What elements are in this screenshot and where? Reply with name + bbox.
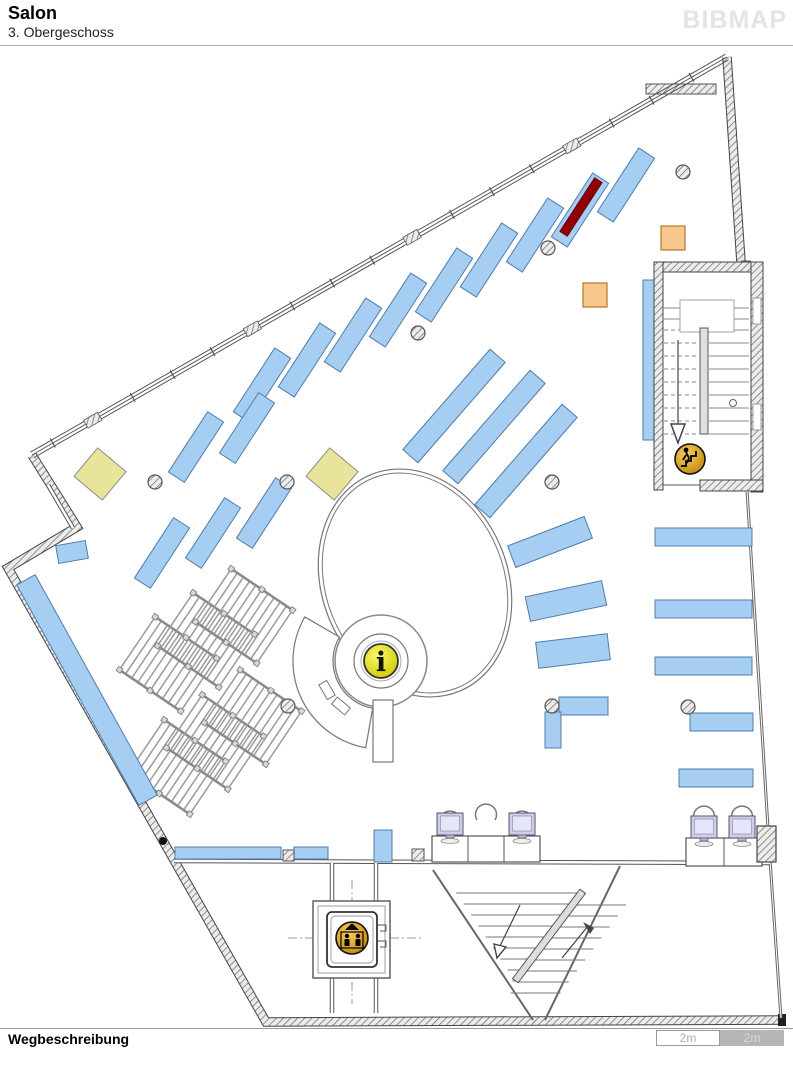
elevator-icon [336, 922, 368, 954]
page-title: Salon [8, 3, 57, 24]
structural-column [280, 475, 294, 489]
bookshelf [643, 280, 655, 440]
door-pivot [159, 837, 167, 845]
display-bin [661, 226, 685, 250]
stairs-icon [675, 444, 705, 474]
bookshelf [536, 634, 611, 669]
bookshelf [559, 697, 608, 715]
structural-column [676, 165, 690, 179]
bookshelf [17, 575, 158, 806]
bookshelf [525, 581, 606, 622]
info-icon: i [361, 641, 401, 681]
elevator [313, 901, 390, 978]
bookshelf [134, 518, 189, 589]
bookshelf [655, 657, 752, 675]
structural-column [148, 475, 162, 489]
computer-stations-bottom [432, 804, 540, 862]
floor-subtitle: 3. Obergeschoss [8, 24, 114, 40]
chair [476, 804, 497, 820]
stair-divider [700, 328, 708, 434]
wall-pier [412, 849, 424, 861]
scale-bar-light: 2m [656, 1030, 720, 1046]
bookshelf [56, 541, 89, 564]
structural-column [545, 699, 559, 713]
wall-column [757, 826, 776, 862]
structural-column [681, 700, 695, 714]
window-wall [30, 54, 728, 458]
display-bin [583, 283, 607, 307]
structural-column [281, 699, 295, 713]
bookshelf [690, 713, 753, 731]
stair-corridor-wall [545, 866, 620, 1020]
header-divider [0, 45, 793, 46]
staircase-diagonal [456, 889, 626, 993]
scale-bar-dark: 2m [720, 1030, 784, 1046]
wall-pier [283, 850, 294, 861]
bookshelf [679, 769, 753, 787]
wegbeschreibung-label: Wegbeschreibung [8, 1031, 129, 1047]
bookshelf [168, 412, 223, 483]
bookshelf [374, 830, 392, 862]
bookshelf [175, 847, 281, 859]
floor-plan-svg[interactable]: i [0, 0, 793, 1067]
apex-wall-bar [646, 84, 716, 94]
highlighted-shelf-salon [560, 178, 602, 237]
bookshelf [655, 528, 752, 546]
structural-column [545, 475, 559, 489]
bookshelf [508, 517, 593, 568]
footer-divider [0, 1028, 793, 1029]
computer-stations-right [686, 806, 762, 866]
down-arrow [494, 944, 506, 958]
structural-column [541, 241, 555, 255]
bookshelf [655, 600, 752, 618]
bookshelf [545, 712, 561, 748]
table-yellow [74, 448, 126, 500]
bookshelf [294, 847, 328, 859]
stairwell [654, 262, 763, 492]
info-desk: i [293, 615, 427, 762]
stair-divider [513, 889, 586, 983]
bookshelf [185, 498, 240, 569]
bibmap-page: i Salon 3. Obergeschoss BIBMAP Wegbeschr… [0, 0, 793, 1067]
info-glyph: i [376, 647, 386, 678]
bibmap-logo: BIBMAP [682, 6, 787, 35]
structural-column [411, 326, 425, 340]
